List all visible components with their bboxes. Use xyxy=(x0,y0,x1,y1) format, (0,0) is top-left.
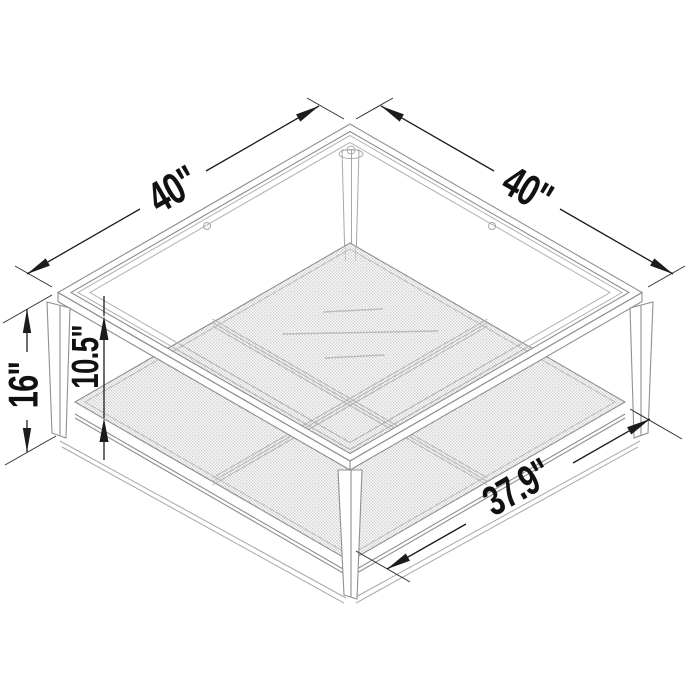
dimension-top-left: 40" xyxy=(15,98,344,287)
dimension-arrow-line xyxy=(381,106,494,171)
front-leg xyxy=(338,470,362,599)
dimension-arrow-line xyxy=(206,106,319,171)
furniture-dimension-diagram: 40" 40" 16" 10.5" 37.9" xyxy=(0,0,700,700)
dimension-arrow-line xyxy=(27,209,140,274)
right-leg xyxy=(630,302,653,438)
dimension-arrow xyxy=(100,418,109,442)
coffee-table-line-drawing: 40" 40" 16" 10.5" 37.9" xyxy=(0,0,700,700)
dim-label-shelf-clearance: 10.5" xyxy=(65,325,107,388)
dimension-top-right: 40" xyxy=(356,98,685,287)
dim-label-height: 16" xyxy=(0,362,46,408)
dimension-arrow-line xyxy=(560,209,673,274)
